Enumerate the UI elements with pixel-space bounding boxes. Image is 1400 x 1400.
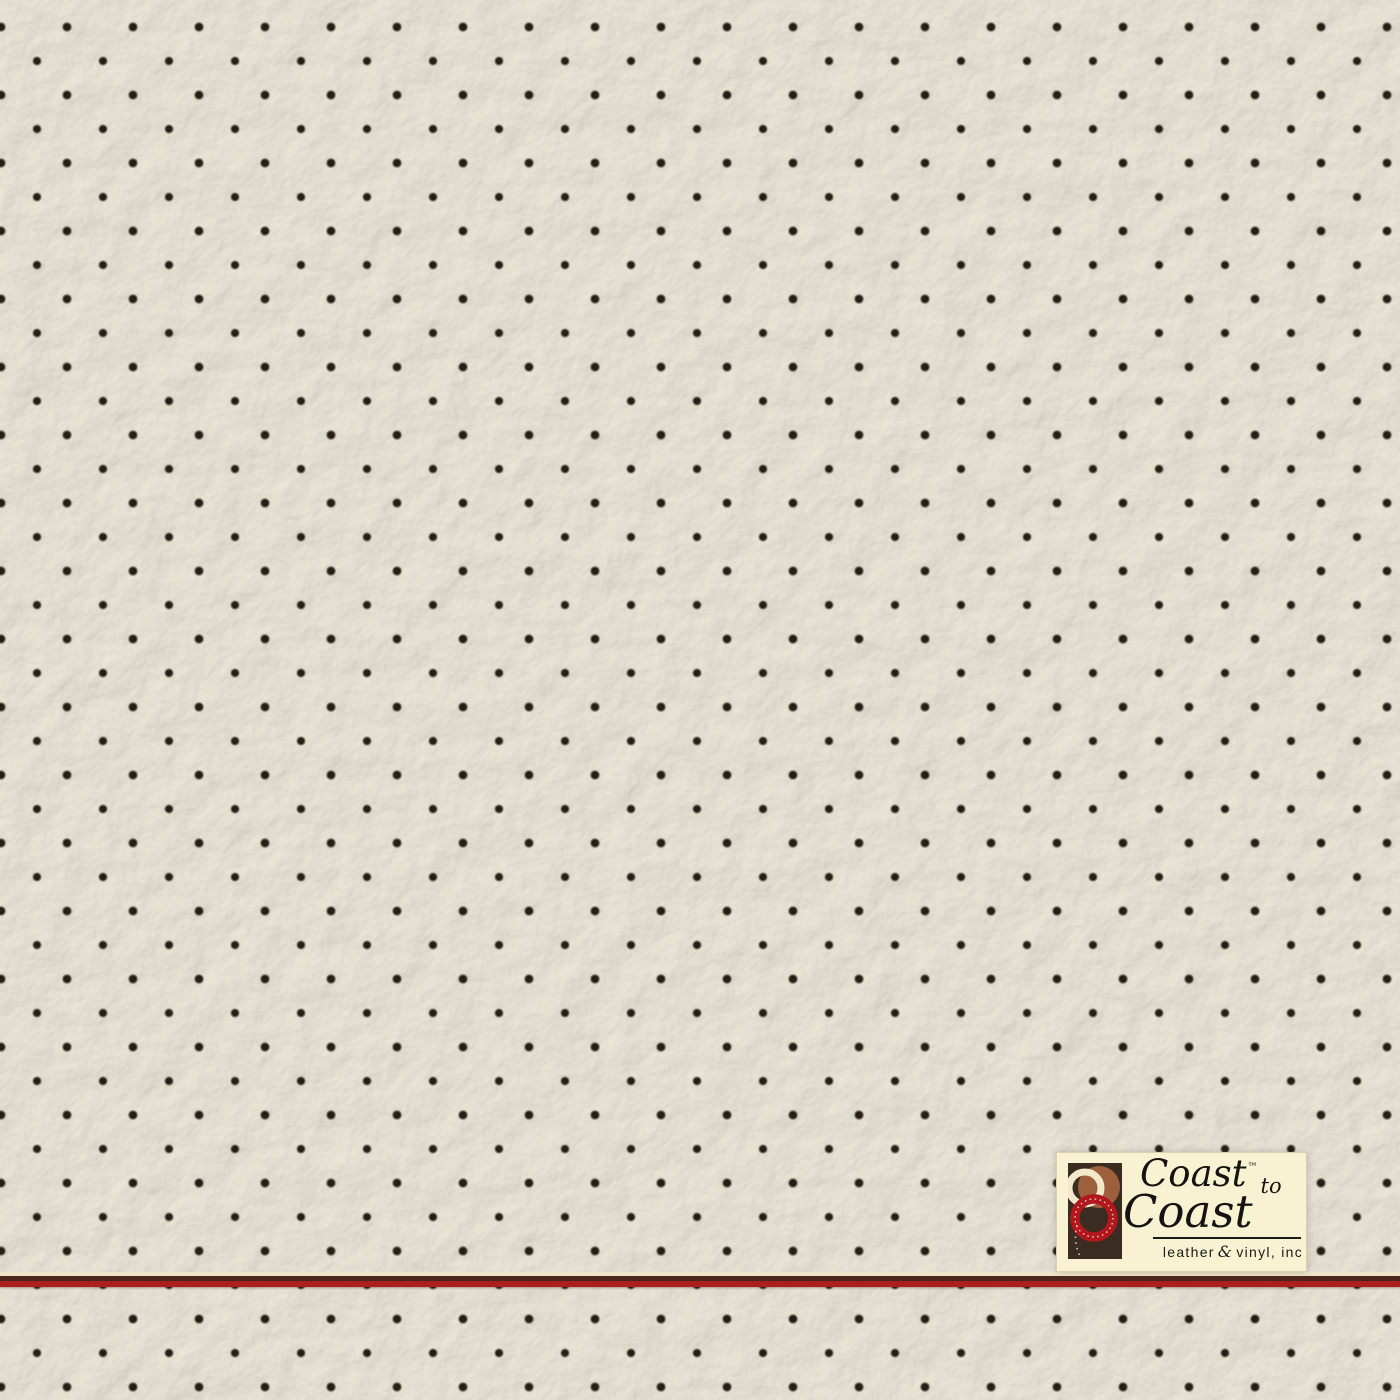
brand-logo: Coast™to Coast leather&vinyl, inc [1056, 1152, 1307, 1272]
wordmark-to: to [1261, 1174, 1282, 1198]
logo-mark [1068, 1163, 1122, 1259]
accent-rule [0, 1272, 1400, 1287]
leather-swatch-photo: Coast™to Coast leather&vinyl, inc [0, 0, 1400, 1400]
logo-tagline: leather&vinyl, inc [1123, 1242, 1303, 1261]
wordmark-coast2: Coast [1123, 1194, 1303, 1231]
accent-rule-red [0, 1281, 1400, 1287]
tagline-ampersand: & [1218, 1242, 1234, 1261]
logo-wordmark: Coast™to Coast leather&vinyl, inc [1123, 1155, 1303, 1261]
tagline-vinyl: vinyl, inc [1236, 1244, 1303, 1260]
trademark-symbol: ™ [1248, 1162, 1258, 1173]
tagline-leather: leather [1163, 1244, 1215, 1260]
